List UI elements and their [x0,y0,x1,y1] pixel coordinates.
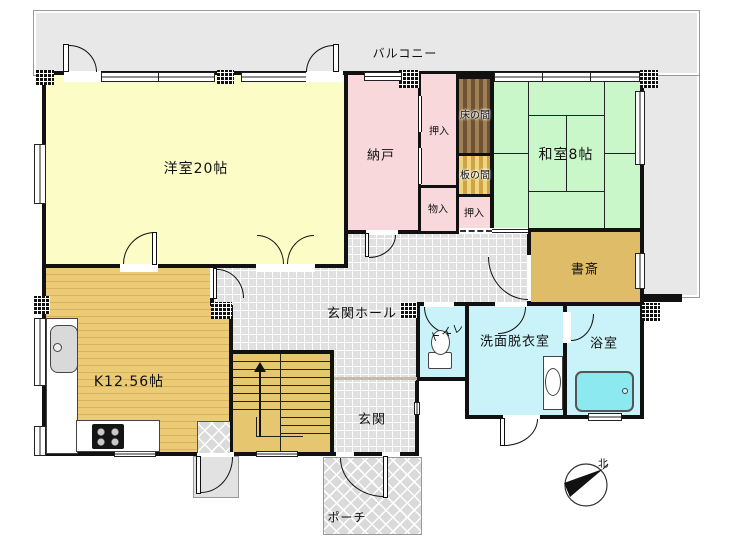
window [635,91,645,165]
balcony-top-strip [33,10,700,76]
stair-treads [280,354,330,434]
label-closet-bottom: 押入 [464,205,484,220]
sliding-door-line [492,232,528,233]
door-gap [563,312,571,343]
door-gap [64,71,101,82]
label-tokonoma: 床の間 [460,107,490,122]
window [414,402,420,415]
label-study: 書斎 [571,259,599,278]
window [635,253,645,289]
tatami-line [528,191,605,192]
hall-main [214,268,527,305]
window [256,451,298,457]
dashed-opening [460,230,492,232]
pillar [211,302,232,319]
window [588,413,622,421]
compass-north-icon: 北 [556,454,620,518]
label-storage-room: 納戸 [367,145,395,164]
window-tick [158,73,159,81]
label-entrance-hall: 玄関ホール [327,303,397,322]
tatami-line [494,153,528,154]
stair-up-arrow-stem [259,371,261,437]
pillar [401,302,417,318]
pillar [642,303,660,321]
window [241,72,307,82]
wall [415,381,419,456]
pillar [217,70,234,84]
label-kitchen: K12.56帖 [94,371,164,391]
wall [456,71,494,79]
wall-balcony-end [640,294,682,302]
tatami-line [528,75,529,228]
pillar [34,296,50,314]
tatami-line [528,115,605,116]
washbasin-bowl-icon [545,368,561,396]
label-closet-top: 押入 [429,123,449,138]
pillar [640,70,658,88]
stair-landing-line [256,436,303,437]
bathtub-drain-icon [622,388,628,394]
label-entrance: 玄関 [358,409,386,428]
label-washroom: 洗面脱衣室 [480,331,550,350]
faucet-icon [53,343,62,352]
sliding-door-line [492,229,528,230]
label-bathroom: 浴室 [590,333,618,352]
door-gap [336,452,354,457]
window [34,144,46,204]
floor-plan: バルコニー 洋室20帖 納戸 押入 床の間 和室8帖 板の間 押入 物入 書斎 … [0,0,732,559]
door-arc [504,419,538,446]
compass-north-label: 北 [598,458,608,470]
entrance-floor [334,350,417,456]
wall [344,231,348,268]
window [34,318,46,386]
label-storage-small: 物入 [428,201,448,216]
stair-divider [280,354,281,452]
label-porch: ポーチ [327,509,366,526]
door-gap [306,71,343,82]
tatami-line [604,75,605,228]
label-balcony: バルコニー [373,45,438,62]
door-gap [120,264,158,272]
label-itanoma: 板の間 [460,167,490,182]
label-japanese-room: 和室8帖 [539,144,594,164]
entrance-step-line [334,377,417,380]
stove-icon [92,424,124,449]
pillar [36,70,54,85]
window [364,72,402,81]
door-gap [256,264,315,272]
kitchen-doma [197,421,230,453]
window [494,72,640,82]
window [34,426,46,456]
stair-landing-line [256,417,257,437]
window-tick [542,73,543,81]
sliding-door [418,148,422,184]
label-western-room: 洋室20帖 [164,158,229,178]
window-tick [590,73,591,81]
sliding-door [418,96,422,132]
pillar [399,70,419,88]
